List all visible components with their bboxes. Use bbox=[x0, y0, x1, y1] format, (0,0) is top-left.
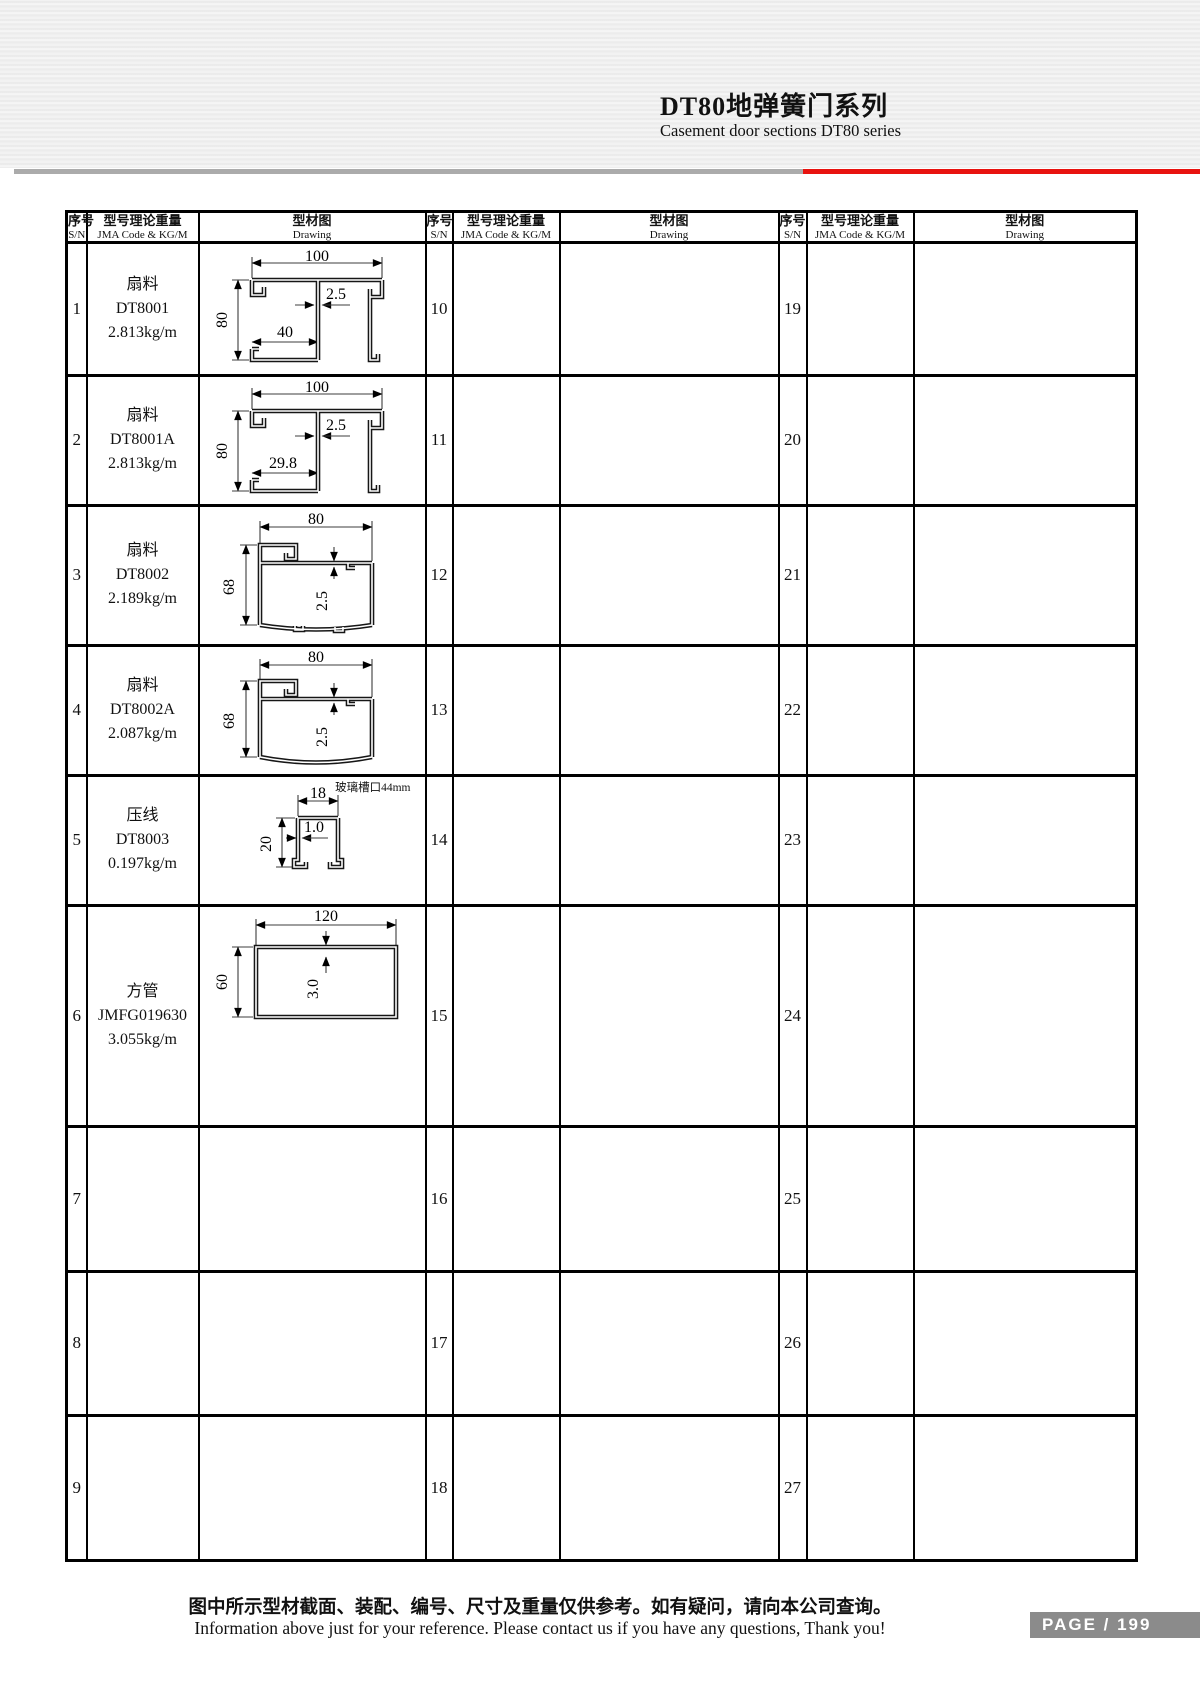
sn-cell: 17 bbox=[426, 1271, 453, 1415]
drawing-cell bbox=[560, 505, 779, 645]
code-cell bbox=[453, 645, 560, 775]
code-cell: 扇料 DT8002 2.189kg/m bbox=[87, 505, 199, 645]
profile-weight: 2.813kg/m bbox=[88, 321, 198, 345]
drawing-cell bbox=[560, 1415, 779, 1560]
sn-cell: 12 bbox=[426, 505, 453, 645]
dim-width-label: 100 bbox=[305, 381, 329, 396]
footer-note-cn: 图中所示型材截面、装配、编号、尺寸及重量仅供参考。如有疑问，请向本公司查询。 bbox=[0, 1593, 1080, 1619]
dim-thickness-label: 2.5 bbox=[314, 727, 331, 747]
drawing-cell bbox=[199, 1126, 426, 1271]
sn-cell: 19 bbox=[779, 242, 807, 375]
dim-inner-label: 29.8 bbox=[269, 455, 297, 472]
code-cell bbox=[453, 775, 560, 905]
code-cell bbox=[453, 242, 560, 375]
drawing-cell bbox=[914, 1126, 1137, 1271]
code-cell bbox=[87, 1271, 199, 1415]
code-cell bbox=[807, 1271, 914, 1415]
drawing-cell bbox=[560, 242, 779, 375]
sn-cell: 2 bbox=[67, 375, 87, 505]
dimension-lines: 100 80 2.5 40 bbox=[214, 250, 382, 360]
sn-cell: 8 bbox=[67, 1271, 87, 1415]
sn-cell: 5 bbox=[67, 775, 87, 905]
table-row: 6 方管 JMFG019630 3.055kg/m 120 60 3.0 bbox=[67, 905, 1137, 1126]
table-header-row: 序号S/N 型号理论重量JMA Code & KG/M 型材图Drawing 序… bbox=[67, 212, 1137, 243]
dim-thickness-label: 2.5 bbox=[314, 591, 331, 611]
drawing-cell: 80 68 2.5 bbox=[199, 645, 426, 775]
profile-outline bbox=[260, 681, 372, 763]
code-cell: 压线 DT8003 0.197kg/m bbox=[87, 775, 199, 905]
col-header-drawing-cn: 型材图 bbox=[561, 213, 778, 229]
col-header-drawing: 型材图Drawing bbox=[914, 212, 1137, 243]
code-cell bbox=[453, 1415, 560, 1560]
profile-weight: 2.087kg/m bbox=[88, 722, 198, 746]
code-cell: 扇料 DT8002A 2.087kg/m bbox=[87, 645, 199, 775]
profile-name: 压线 bbox=[88, 804, 198, 828]
dimension-lines: 100 80 2.5 29.8 bbox=[214, 381, 382, 491]
dt8001a-section-drawing: 100 80 2.5 29.8 bbox=[200, 381, 425, 499]
sn-cell: 26 bbox=[779, 1271, 807, 1415]
col-header-drawing-en: Drawing bbox=[200, 229, 425, 241]
sn-cell: 14 bbox=[426, 775, 453, 905]
code-cell bbox=[453, 375, 560, 505]
dimension-lines: 120 60 3.0 bbox=[214, 908, 396, 1017]
col-header-code-cn: 型号理论重量 bbox=[454, 213, 559, 229]
drawing-cell: 120 60 3.0 bbox=[199, 905, 426, 1126]
col-header-drawing-cn: 型材图 bbox=[915, 213, 1136, 229]
dim-width-label: 18 bbox=[310, 785, 326, 802]
col-header-code-cn: 型号理论重量 bbox=[88, 213, 198, 229]
dt8003-section-drawing: 18 20 1.0 bbox=[200, 784, 425, 896]
drawing-cell: 玻璃槽口44mm 18 20 1.0 bbox=[199, 775, 426, 905]
code-cell bbox=[453, 905, 560, 1126]
drawing-cell bbox=[914, 505, 1137, 645]
header-rule-red bbox=[803, 169, 1200, 174]
code-cell bbox=[453, 505, 560, 645]
profile-weight: 2.813kg/m bbox=[88, 452, 198, 476]
profile-weight: 3.055kg/m bbox=[88, 1028, 198, 1052]
drawing-cell bbox=[560, 775, 779, 905]
drawing-cell bbox=[560, 1126, 779, 1271]
dim-height-label: 80 bbox=[214, 312, 231, 328]
code-cell bbox=[807, 375, 914, 505]
table-row: 4 扇料 DT8002A 2.087kg/m 80 68 2.5 bbox=[67, 645, 1137, 775]
code-cell bbox=[807, 775, 914, 905]
drawing-cell: 100 80 2.5 40 bbox=[199, 242, 426, 375]
drawing-cell: 80 68 2.5 bbox=[199, 505, 426, 645]
col-header-code: 型号理论重量JMA Code & KG/M bbox=[87, 212, 199, 243]
profile-name: 方管 bbox=[88, 980, 198, 1004]
profile-code: DT8001A bbox=[88, 428, 198, 452]
sn-cell: 22 bbox=[779, 645, 807, 775]
sn-cell: 7 bbox=[67, 1126, 87, 1271]
col-header-code-cn: 型号理论重量 bbox=[808, 213, 913, 229]
table-row: 3 扇料 DT8002 2.189kg/m 80 68 2.5 bbox=[67, 505, 1137, 645]
col-header-code-en: JMA Code & KG/M bbox=[454, 229, 559, 241]
dt8002-section-drawing: 80 68 2.5 bbox=[200, 511, 425, 639]
drawing-cell bbox=[914, 905, 1137, 1126]
drawing-cell: 100 80 2.5 29.8 bbox=[199, 375, 426, 505]
drawing-cell bbox=[914, 242, 1137, 375]
code-cell bbox=[807, 1126, 914, 1271]
profile-code: JMFG019630 bbox=[88, 1004, 198, 1028]
sn-cell: 10 bbox=[426, 242, 453, 375]
col-header-sn-cn: 序号 bbox=[68, 213, 86, 229]
drawing-cell bbox=[560, 905, 779, 1126]
drawing-cell bbox=[199, 1415, 426, 1560]
glass-slot-note: 玻璃槽口44mm bbox=[335, 779, 410, 795]
sn-cell: 15 bbox=[426, 905, 453, 1126]
col-header-drawing-cn: 型材图 bbox=[200, 213, 425, 229]
page-title: DT80地弹簧门系列 bbox=[660, 86, 888, 123]
code-cell bbox=[87, 1126, 199, 1271]
code-cell bbox=[453, 1271, 560, 1415]
dim-inner-label: 40 bbox=[277, 324, 293, 341]
col-header-code: 型号理论重量JMA Code & KG/M bbox=[453, 212, 560, 243]
table-row: 9 18 27 bbox=[67, 1415, 1137, 1560]
sn-cell: 23 bbox=[779, 775, 807, 905]
col-header-sn-cn: 序号 bbox=[427, 213, 452, 229]
profile-name: 扇料 bbox=[88, 539, 198, 563]
page-header-banner bbox=[0, 0, 1200, 168]
profile-weight: 0.197kg/m bbox=[88, 852, 198, 876]
sn-cell: 27 bbox=[779, 1415, 807, 1560]
dim-thickness-label: 3.0 bbox=[305, 979, 322, 999]
col-header-drawing: 型材图Drawing bbox=[560, 212, 779, 243]
dim-thickness-label: 2.5 bbox=[326, 286, 346, 303]
table-row: 7 16 25 bbox=[67, 1126, 1137, 1271]
code-cell: 方管 JMFG019630 3.055kg/m bbox=[87, 905, 199, 1126]
dt8001-section-drawing: 100 80 2.5 40 bbox=[200, 250, 425, 368]
profile-catalog-table: 序号S/N 型号理论重量JMA Code & KG/M 型材图Drawing 序… bbox=[65, 210, 1138, 1562]
sn-cell: 21 bbox=[779, 505, 807, 645]
dim-height-label: 60 bbox=[214, 974, 231, 990]
sn-cell: 1 bbox=[67, 242, 87, 375]
dim-width-label: 80 bbox=[308, 651, 324, 666]
dim-width-label: 100 bbox=[305, 250, 329, 265]
sn-cell: 13 bbox=[426, 645, 453, 775]
col-header-sn-en: S/N bbox=[68, 229, 86, 241]
drawing-cell bbox=[914, 375, 1137, 505]
col-header-sn-en: S/N bbox=[427, 229, 452, 241]
profile-name: 扇料 bbox=[88, 273, 198, 297]
code-cell bbox=[87, 1415, 199, 1560]
sn-cell: 11 bbox=[426, 375, 453, 505]
col-header-code: 型号理论重量JMA Code & KG/M bbox=[807, 212, 914, 243]
col-header-sn: 序号S/N bbox=[426, 212, 453, 243]
col-header-sn: 序号S/N bbox=[67, 212, 87, 243]
drawing-cell bbox=[914, 775, 1137, 905]
drawing-cell bbox=[560, 375, 779, 505]
sn-cell: 6 bbox=[67, 905, 87, 1126]
code-cell bbox=[807, 1415, 914, 1560]
sn-cell: 25 bbox=[779, 1126, 807, 1271]
code-cell bbox=[807, 905, 914, 1126]
table-row: 8 17 26 bbox=[67, 1271, 1137, 1415]
table-row: 2 扇料 DT8001A 2.813kg/m 100 80 2.5 bbox=[67, 375, 1137, 505]
dt8002a-section-drawing: 80 68 2.5 bbox=[200, 651, 425, 769]
sn-cell: 24 bbox=[779, 905, 807, 1126]
footer-note-en: Information above just for your referenc… bbox=[0, 1618, 1080, 1639]
col-header-code-en: JMA Code & KG/M bbox=[88, 229, 198, 241]
dim-height-label: 80 bbox=[214, 443, 231, 459]
table-row: 5 压线 DT8003 0.197kg/m 玻璃槽口44mm 18 20 1 bbox=[67, 775, 1137, 905]
code-cell bbox=[807, 505, 914, 645]
page-subtitle: Casement door sections DT80 series bbox=[660, 121, 901, 141]
header-rule-gray bbox=[14, 169, 803, 174]
col-header-drawing-en: Drawing bbox=[915, 229, 1136, 241]
col-header-sn-en: S/N bbox=[780, 229, 806, 241]
profile-outline bbox=[252, 280, 382, 360]
profile-name: 扇料 bbox=[88, 404, 198, 428]
dim-width-label: 120 bbox=[314, 908, 338, 925]
profile-code: DT8001 bbox=[88, 297, 198, 321]
col-header-sn-cn: 序号 bbox=[780, 213, 806, 229]
profile-name: 扇料 bbox=[88, 674, 198, 698]
profile-code: DT8003 bbox=[88, 828, 198, 852]
profile-outline bbox=[260, 545, 372, 631]
dim-height-label: 68 bbox=[221, 713, 238, 729]
jmfg019630-section-drawing: 120 60 3.0 bbox=[200, 907, 425, 1057]
drawing-cell bbox=[560, 1271, 779, 1415]
profile-code: DT8002A bbox=[88, 698, 198, 722]
sn-cell: 9 bbox=[67, 1415, 87, 1560]
drawing-cell bbox=[914, 1415, 1137, 1560]
col-header-drawing: 型材图Drawing bbox=[199, 212, 426, 243]
dim-width-label: 80 bbox=[308, 511, 324, 528]
dim-thickness-label: 2.5 bbox=[326, 417, 346, 434]
code-cell bbox=[807, 242, 914, 375]
sn-cell: 4 bbox=[67, 645, 87, 775]
sn-cell: 16 bbox=[426, 1126, 453, 1271]
profile-code: DT8002 bbox=[88, 563, 198, 587]
dim-height-label: 68 bbox=[221, 579, 238, 595]
col-header-code-en: JMA Code & KG/M bbox=[808, 229, 913, 241]
col-header-drawing-en: Drawing bbox=[561, 229, 778, 241]
drawing-cell bbox=[914, 645, 1137, 775]
code-cell: 扇料 DT8001 2.813kg/m bbox=[87, 242, 199, 375]
sn-cell: 20 bbox=[779, 375, 807, 505]
drawing-cell bbox=[560, 645, 779, 775]
profile-weight: 2.189kg/m bbox=[88, 587, 198, 611]
dim-height-label: 20 bbox=[258, 836, 275, 852]
code-cell: 扇料 DT8001A 2.813kg/m bbox=[87, 375, 199, 505]
profile-outline bbox=[252, 411, 382, 491]
table-row: 1 扇料 DT8001 2.813kg/m 100 80 2.5 bbox=[67, 242, 1137, 375]
drawing-cell bbox=[914, 1271, 1137, 1415]
page-number-badge: PAGE / 199 bbox=[1030, 1612, 1200, 1638]
sn-cell: 3 bbox=[67, 505, 87, 645]
sn-cell: 18 bbox=[426, 1415, 453, 1560]
code-cell bbox=[807, 645, 914, 775]
dim-thickness-label: 1.0 bbox=[304, 819, 324, 836]
col-header-sn: 序号S/N bbox=[779, 212, 807, 243]
drawing-cell bbox=[199, 1271, 426, 1415]
code-cell bbox=[453, 1126, 560, 1271]
